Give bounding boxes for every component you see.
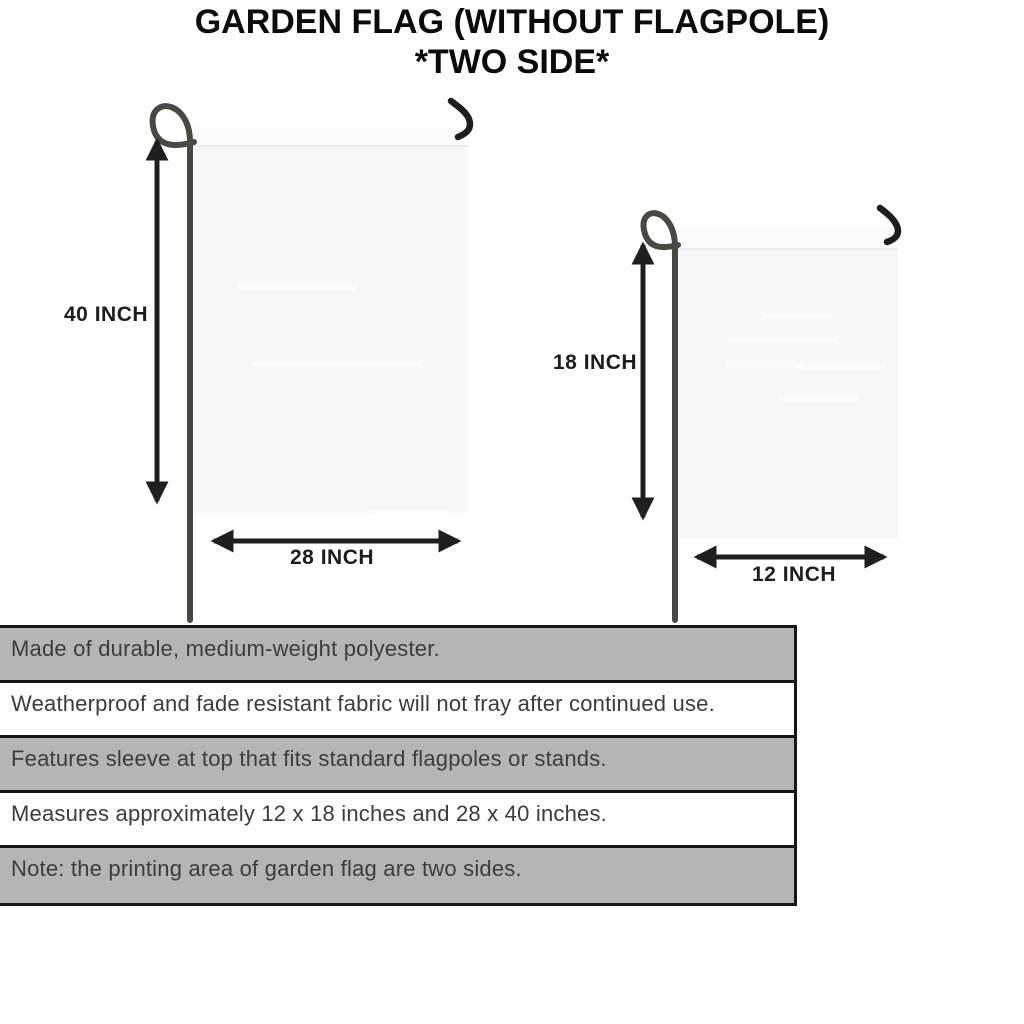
small-flag-wrinkle-highlight <box>726 362 806 367</box>
small-flag-width-label: 12 INCH <box>752 563 836 587</box>
small-flag-assembly <box>643 208 898 620</box>
small-flag-wrinkle-highlight <box>728 338 838 343</box>
product-features-table: Made of durable, medium-weight polyester… <box>0 625 797 906</box>
large-flag-wrinkle-highlight <box>238 284 358 290</box>
product-infographic-page: GARDEN FLAG (WITHOUT FLAGPOLE) *TWO SIDE… <box>0 0 1024 1024</box>
feature-row: Measures approximately 12 x 18 inches an… <box>0 793 794 848</box>
feature-row: Note: the printing area of garden flag a… <box>0 848 794 903</box>
feature-row: Made of durable, medium-weight polyester… <box>0 628 794 683</box>
small-flag-height-label: 18 INCH <box>553 351 637 375</box>
large-flag-wrinkle-highlight <box>252 362 422 367</box>
large-flag-fabric <box>193 123 468 513</box>
large-flag-sleeve <box>193 123 468 145</box>
feature-row: Features sleeve at top that fits standar… <box>0 738 794 793</box>
small-flag-wrinkle-highlight <box>762 314 832 319</box>
small-flag-fabric <box>677 228 898 538</box>
large-flag-wrinkle-highlight <box>370 510 450 514</box>
large-flag-assembly <box>153 101 470 620</box>
large-flag-width-label: 28 INCH <box>290 546 374 570</box>
small-flag-sleeve <box>677 228 898 248</box>
small-flagpole-icon <box>644 213 678 620</box>
small-flag-wrinkle-highlight <box>796 364 886 369</box>
small-flag-wrinkle-highlight <box>778 396 858 401</box>
large-flag-height-label: 40 INCH <box>64 303 148 327</box>
feature-row: Weatherproof and fade resistant fabric w… <box>0 683 794 738</box>
